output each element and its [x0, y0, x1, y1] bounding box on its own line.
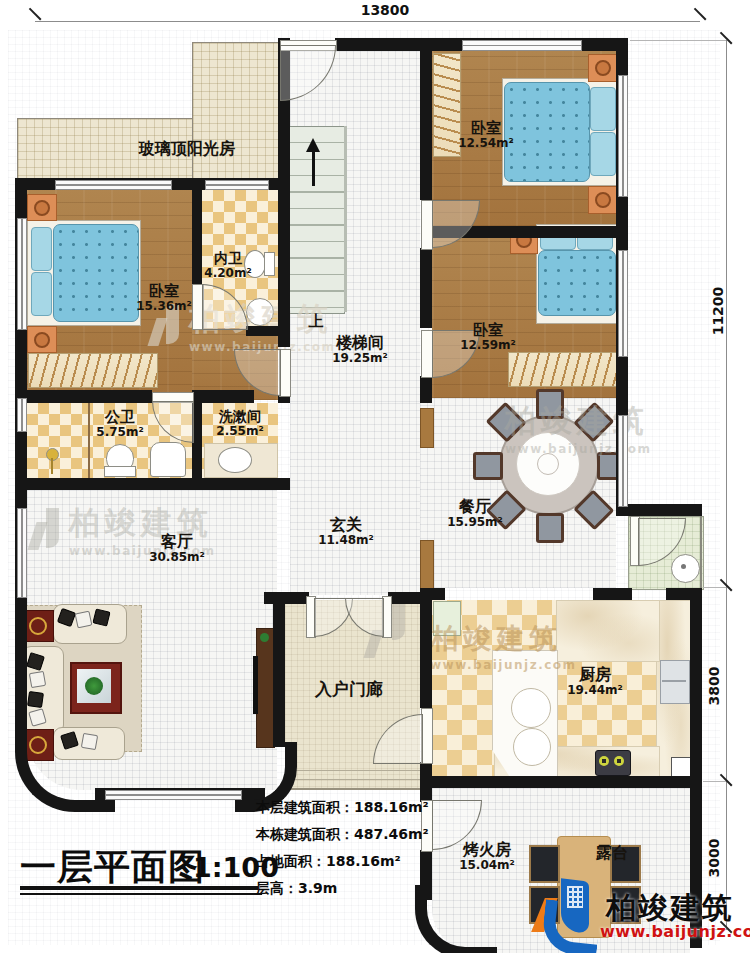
bed-mattress [538, 250, 616, 316]
dining-chair [536, 389, 564, 419]
room-label-fire-room: 烤火房 15.04m² [459, 841, 515, 872]
nightstand [27, 194, 57, 221]
logo-window-grid [567, 886, 583, 908]
title-underline [20, 893, 262, 895]
info-value: 3.9m [298, 880, 337, 896]
side-table-decor [29, 617, 47, 635]
window [105, 790, 242, 800]
wall [15, 390, 152, 403]
bed-pillow [590, 132, 616, 176]
wall [246, 326, 278, 336]
window [618, 250, 628, 357]
room-label-living: 客厅 30.85m² [149, 533, 205, 564]
info-value: 188.16m² [326, 853, 401, 869]
nightstand [588, 186, 618, 214]
window [17, 508, 27, 598]
room-label-sunroom: 玻璃顶阳光房 [139, 140, 235, 158]
room-label-bedroom-right: 卧室 12.59m² [460, 322, 516, 352]
room-label-washroom: 洗漱间 2.55m² [216, 409, 263, 438]
wall [420, 762, 432, 788]
pony-wall [420, 408, 434, 448]
dimension-line-right [726, 40, 727, 930]
extension-line [703, 587, 726, 588]
room-label-foyer: 玄关 11.48m² [318, 516, 374, 547]
wall [690, 588, 702, 788]
room-label-kitchen: 厨房 19.44m² [567, 666, 623, 697]
toilet-base [104, 466, 136, 477]
room-label-bedroom-top: 卧室 12.54m² [458, 120, 514, 150]
sink [218, 447, 252, 473]
bed-pillow [31, 272, 52, 316]
room-label-bedroom-left: 卧室 15.36m² [136, 283, 192, 313]
window [618, 75, 628, 197]
dining-chair [473, 452, 503, 480]
dining-table-center [537, 453, 559, 475]
alcove-edge [700, 516, 702, 588]
kitchen-basin [511, 688, 551, 728]
window [205, 180, 269, 190]
stove-burner [614, 756, 624, 766]
bed-mattress [53, 224, 139, 322]
sink-drain [681, 564, 686, 569]
info-label: 本层建筑面积： [256, 799, 354, 815]
window [462, 40, 582, 51]
room-label-terrace: 露台 [596, 844, 628, 862]
extension-line [630, 40, 726, 41]
info-line: 本层建筑面积：188.16m² [256, 799, 429, 817]
room-floor-foyer [290, 403, 420, 595]
window [17, 398, 27, 432]
porch-step [288, 770, 420, 771]
wall [420, 600, 432, 708]
toilet-tank [264, 252, 275, 276]
porch-step [288, 779, 420, 780]
porch-edge [285, 788, 420, 790]
stair-handrail [344, 126, 347, 312]
stairs-up-arrow-head [306, 138, 320, 152]
info-line: 本栋建筑面积：487.46m² [256, 826, 429, 844]
sofa-pillow [75, 611, 93, 629]
window [55, 180, 172, 190]
company-url: www.baijunjz.com [600, 922, 750, 941]
title-underline [20, 886, 258, 890]
bed-mattress [504, 82, 590, 182]
fire-room-chair [529, 845, 560, 883]
fridge [433, 601, 461, 636]
room-floor-sunroom [192, 42, 280, 182]
wall [273, 592, 285, 747]
wall [420, 376, 432, 403]
plant [260, 633, 269, 642]
wardrobe [508, 352, 620, 387]
dimension-label-right-fire: 3000 [706, 828, 722, 888]
wall [420, 588, 445, 600]
stove-burner [599, 756, 609, 766]
room-label-porch: 入户门廊 [315, 680, 383, 699]
wardrobe [28, 353, 158, 388]
sofa-pillow [29, 671, 46, 688]
room-label-dining: 餐厅 15.95m² [447, 498, 503, 529]
sink [246, 298, 274, 326]
wall [192, 188, 202, 288]
info-value: 188.16m² [354, 799, 429, 815]
wall [593, 588, 632, 600]
stairs-up-arrow [312, 150, 315, 186]
wall-corner [415, 885, 497, 953]
info-label: 本栋建筑面积： [256, 826, 354, 842]
info-line: 层高：3.9m [256, 880, 337, 898]
dimension-label-right-total: 11200 [710, 281, 726, 341]
floor-plan: 柏竣建筑 www.baijunjz.com 柏竣建筑 www.baijunjz.… [0, 0, 750, 953]
room-label-stair-hall: 楼梯间 19.25m² [332, 334, 388, 365]
room-label-inner-bath: 内卫 4.20m² [204, 251, 251, 280]
room-label-public-bath: 公卫 5.75m² [96, 409, 143, 439]
tv-screen [253, 656, 258, 714]
stairs [287, 126, 345, 314]
company-logo-icon [537, 880, 601, 952]
wall [420, 248, 432, 328]
info-label: 占地面积： [256, 853, 326, 869]
extension-line [703, 781, 726, 782]
nightstand [27, 326, 57, 353]
info-line: 占地面积：188.16m² [256, 853, 401, 871]
dimension-label-right-kitchen: 3800 [706, 656, 722, 716]
sink [671, 554, 700, 583]
bath-partition [88, 403, 90, 478]
window [618, 415, 628, 507]
washing-machine [150, 442, 186, 477]
info-label: 层高： [256, 880, 298, 896]
kitchen-counter [556, 600, 660, 662]
kitchen-sink [660, 660, 690, 704]
bed-pillow [590, 87, 616, 131]
dimension-label-top: 13800 [340, 2, 430, 18]
stairs-up-label: 上 [309, 313, 324, 330]
wall [616, 504, 702, 516]
dimension-tick [28, 8, 41, 21]
wall [15, 478, 290, 490]
bed-pillow [31, 227, 52, 271]
plan-title: 一层平面图 [20, 843, 205, 892]
wall [432, 776, 702, 788]
dimension-line-top [35, 21, 700, 22]
wall [420, 38, 432, 200]
dining-chair [536, 513, 564, 543]
nightstand [588, 54, 618, 82]
wall [264, 592, 309, 604]
kitchen-basin [513, 728, 551, 766]
pony-wall [420, 540, 434, 590]
wardrobe [433, 53, 461, 157]
info-value: 487.46m² [354, 826, 429, 842]
plant [85, 677, 103, 695]
floor-drain-stem [51, 458, 53, 474]
kitchen-sink-divider [662, 680, 686, 682]
window [17, 218, 27, 330]
dimension-tick [693, 8, 706, 21]
